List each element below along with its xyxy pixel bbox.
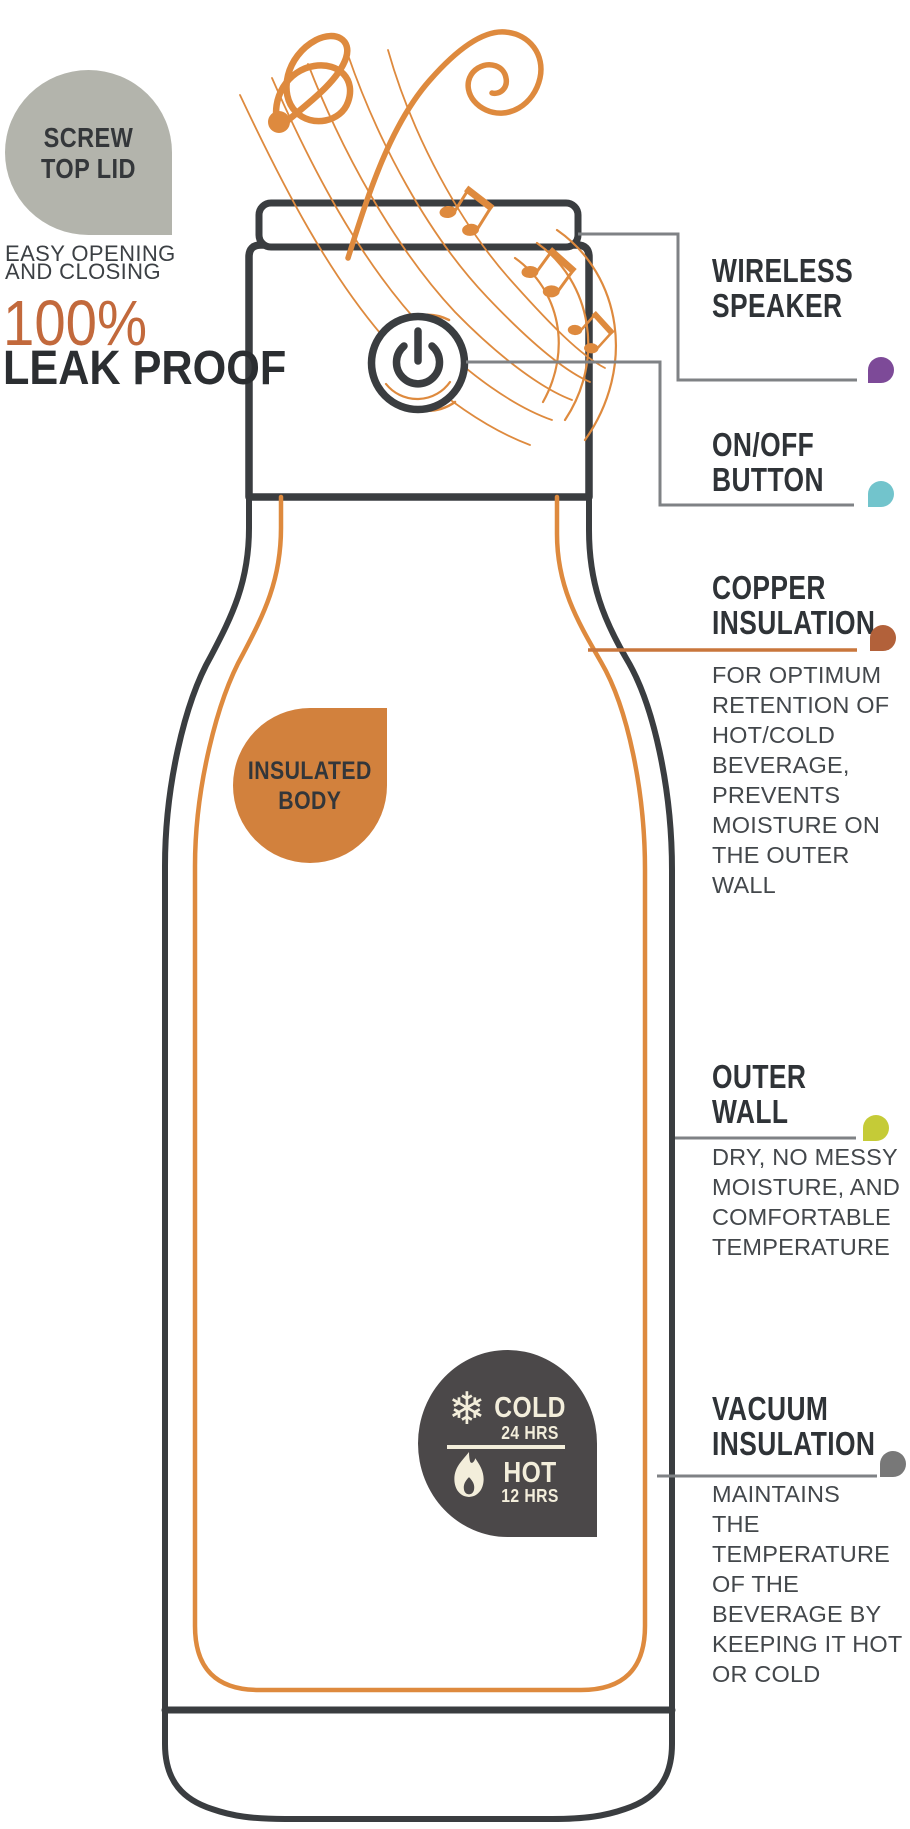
callout-title-on-off-button: ON/OFF BUTTON bbox=[712, 427, 824, 497]
bottle-base bbox=[165, 1710, 672, 1819]
callout-desc-copper-insulation: FOR OPTIMUM RETENTION OF HOT/COLD BEVERA… bbox=[712, 660, 889, 900]
flame-icon bbox=[452, 1452, 486, 1498]
vacuum-insulation-dot bbox=[880, 1451, 906, 1477]
wireless-speaker-dot bbox=[868, 357, 894, 383]
callout-title-wireless-speaker: WIRELESS SPEAKER bbox=[712, 253, 853, 323]
outer-wall-dot bbox=[863, 1115, 889, 1141]
snowflake-icon: ❄ bbox=[440, 1384, 494, 1434]
callout-desc-vacuum-insulation: MAINTAINS THE TEMPERATURE OF THE BEVERAG… bbox=[712, 1479, 902, 1689]
clef-note-head bbox=[268, 111, 290, 133]
callout-title-vacuum-insulation: VACUUM INSULATION bbox=[712, 1391, 875, 1461]
insulated-body-label: INSULATED BODY bbox=[248, 756, 372, 816]
cold-duration: 24 HRS bbox=[494, 1423, 565, 1443]
temperature-badge: ❄ COLD 24 HRS HOT 12 HRS bbox=[418, 1350, 597, 1537]
on-off-button-dot bbox=[868, 481, 894, 507]
callout-title-copper-insulation: COPPER INSULATION bbox=[712, 570, 875, 640]
hot-duration: 12 HRS bbox=[494, 1486, 565, 1506]
bottle-outline bbox=[165, 203, 672, 1819]
insulated-body-bubble: INSULATED BODY bbox=[233, 708, 387, 863]
hot-label: HOT bbox=[494, 1458, 565, 1488]
power-button bbox=[372, 317, 465, 410]
copper-insulation-dot bbox=[870, 625, 896, 651]
cold-label: COLD bbox=[494, 1393, 565, 1423]
callout-title-outer-wall: OUTER WALL bbox=[712, 1059, 806, 1129]
infographic-canvas: SCREW TOP LID EASY OPENING AND CLOSING 1… bbox=[0, 0, 910, 1829]
callout-desc-outer-wall: DRY, NO MESSY MOISTURE, AND COMFORTABLE … bbox=[712, 1142, 900, 1262]
screw-top-lid-bubble: SCREW TOP LID bbox=[5, 70, 172, 235]
easy-opening-text: EASY OPENING AND CLOSING bbox=[5, 245, 176, 281]
badge-divider bbox=[447, 1445, 565, 1449]
leak-proof-text: LEAK PROOF bbox=[3, 346, 286, 392]
screw-top-lid-label: SCREW TOP LID bbox=[41, 122, 136, 184]
